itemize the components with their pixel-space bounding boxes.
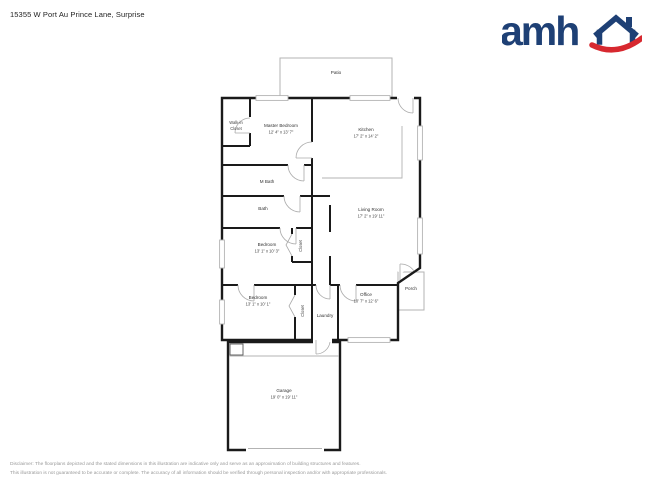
laundry-door (316, 285, 330, 299)
label-garage: Garage (276, 388, 292, 393)
closet1-bifold (286, 234, 292, 256)
dims-bedroom-2: 13' 1" x 10' 1" (246, 302, 271, 307)
label-closet-1: Closet (298, 239, 303, 251)
water-heater (230, 344, 243, 355)
dims-bedroom-1: 13' 1" x 10' 3" (255, 249, 280, 254)
floor-plan: Patio Walk-in Closet Master Bedroom 12' … (0, 0, 650, 488)
dims-kitchen: 17' 2" x 14' 2" (354, 134, 379, 139)
room-labels: Patio Walk-in Closet Master Bedroom 12' … (229, 70, 417, 400)
label-bedroom-2: Bedroom (249, 295, 268, 300)
label-m-bath: M Bath (260, 179, 275, 184)
mbath-door (288, 165, 304, 181)
patio-outline (280, 58, 392, 98)
label-master-bedroom: Master Bedroom (264, 123, 298, 128)
label-wic-2: Closet (230, 126, 242, 131)
label-living-room: Living Room (358, 207, 384, 212)
label-office: Office (360, 292, 372, 297)
disclaimer: Disclaimer: The floorplans depicted and … (10, 460, 387, 478)
label-laundry: Laundry (317, 313, 334, 318)
label-bath: Bath (258, 206, 268, 211)
dims-garage: 19' 0" x 19' 11" (271, 395, 298, 400)
dims-master-bedroom: 12' 4" x 13' 7" (269, 130, 294, 135)
closet2-bifold (289, 295, 295, 317)
label-patio: Patio (331, 70, 342, 75)
label-kitchen: Kitchen (358, 127, 374, 132)
dims-living-room: 17' 2" x 19' 11" (358, 214, 385, 219)
disclaimer-line-1: Disclaimer: The floorplans depicted and … (10, 460, 387, 469)
master-door (296, 142, 312, 158)
porch-outline (398, 272, 424, 310)
fixtures (229, 126, 402, 449)
bath-door (284, 196, 300, 212)
label-wic-1: Walk-in (229, 120, 243, 125)
dims-office: 10' 7" x 12' 6" (354, 299, 379, 304)
label-porch: Porch (405, 286, 417, 291)
disclaimer-line-2: This illustration is not guaranteed to b… (10, 469, 387, 478)
label-closet-2: Closet (300, 304, 305, 316)
outer-walls (222, 98, 420, 450)
label-bedroom-1: Bedroom (258, 242, 277, 247)
